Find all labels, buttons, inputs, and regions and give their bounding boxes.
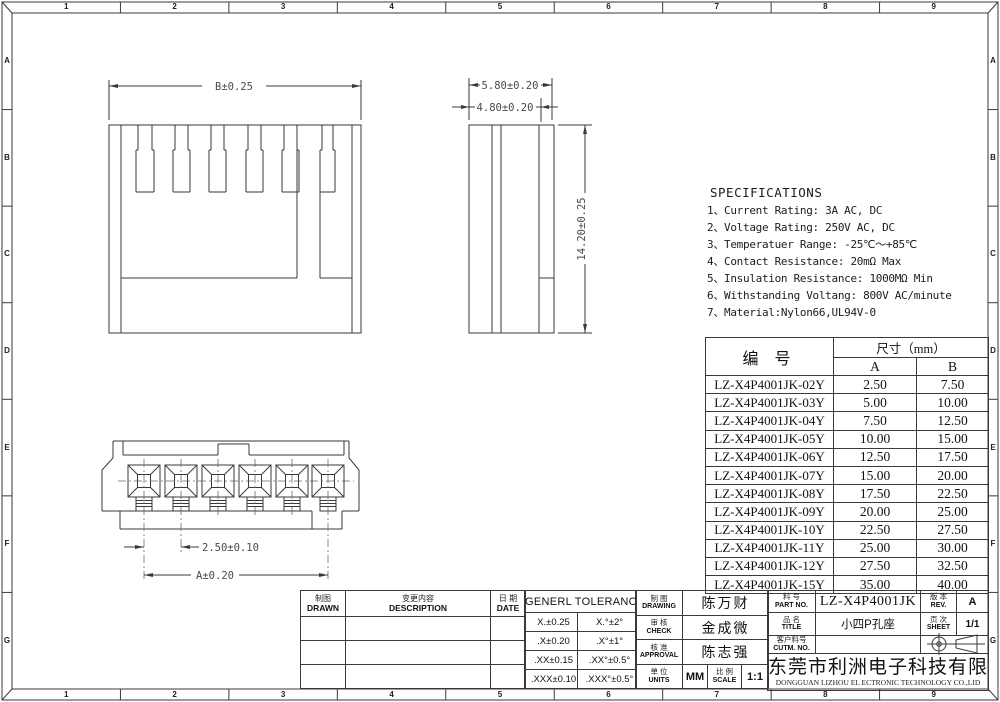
- size-value-cell: 12.50: [917, 412, 989, 430]
- specifications-block: SPECIFICATIONS 1、Current Rating: 3A AC, …: [707, 184, 997, 321]
- ruler-label: A: [987, 56, 999, 66]
- spec-line: 5、Insulation Resistance: 1000MΩ Min: [707, 270, 997, 287]
- tolerance-row: .X±0.20.X°±1°: [525, 632, 637, 651]
- part-number-cell: LZ-X4P4001JK-06Y: [706, 448, 834, 466]
- tolerance-row: X.±0.25X.°±2°: [525, 613, 637, 632]
- size-value-cell: 5.00: [834, 394, 917, 412]
- ruler-label: E: [987, 443, 999, 453]
- dimension-label-span: A±0.20: [196, 570, 234, 582]
- part-number-cell: LZ-X4P4001JK-03Y: [706, 394, 834, 412]
- size-value-cell: 20.00: [834, 503, 917, 521]
- revision-description-header: 变更内容 DESCRIPTION: [346, 591, 491, 617]
- column-a-header: A: [834, 358, 917, 376]
- ruler-label: 7: [711, 2, 723, 12]
- tolerance-cell: X.±0.25: [525, 613, 578, 632]
- bottom-view-dimensions: 2.50±0.10 A±0.20: [124, 542, 328, 582]
- scale-value: 1:1: [742, 665, 769, 689]
- ruler-label: F: [1, 539, 13, 549]
- ruler-label: C: [987, 249, 999, 259]
- table-row: LZ-X4P4001JK-11Y25.0030.00: [706, 539, 989, 557]
- table-row: LZ-X4P4001JK-03Y5.0010.00: [706, 394, 989, 412]
- company-cell: 东莞市利洲电子科技有限公司 DONGGUAN LIZHOU EL ECTRONI…: [768, 653, 989, 690]
- customer-no-label: 客户料号 CUTM. NO.: [768, 636, 816, 654]
- ruler-label: C: [1, 249, 13, 259]
- ruler-label: 3: [277, 690, 289, 700]
- ruler-label: 3: [277, 2, 289, 12]
- ruler-label: 2: [169, 2, 181, 12]
- part-no-value: LZ-X4P4001JK: [816, 591, 921, 613]
- ruler-label: D: [987, 346, 999, 356]
- size-value-cell: 7.50: [917, 376, 989, 394]
- tolerance-row: .XX±0.15.XX°±0.5°: [525, 651, 637, 670]
- table-row: LZ-X4P4001JK-06Y12.5017.50: [706, 448, 989, 466]
- ruler-label: B: [1, 153, 13, 163]
- spec-line: 2、Voltage Rating: 250V AC, DC: [707, 219, 997, 236]
- size-value-cell: 22.50: [917, 485, 989, 503]
- tolerance-cell: .XX°±0.5°: [578, 651, 637, 670]
- ruler-label: 5: [494, 690, 506, 700]
- company-name-cn: 东莞市利洲电子科技有限公司: [768, 657, 988, 678]
- dimension-label-side-width: 5.80±0.20: [482, 80, 539, 92]
- ruler-label: 9: [928, 690, 940, 700]
- spec-line: 3、Temperatuer Range: -25℃～+85℃: [707, 236, 997, 253]
- part-number-cell: LZ-X4P4001JK-05Y: [706, 430, 834, 448]
- size-value-cell: 25.00: [917, 503, 989, 521]
- drawing-name: 陈万财: [683, 591, 769, 616]
- table-row: LZ-X4P4001JK-08Y17.5022.50: [706, 485, 989, 503]
- dimension-label-front-width: B±0.25: [215, 81, 253, 93]
- units-label: 单 位 UNITS: [636, 665, 683, 689]
- size-value-cell: 10.00: [834, 430, 917, 448]
- sheet-label: 页 次 SHEET: [921, 613, 957, 636]
- tolerance-cell: .X°±1°: [578, 632, 637, 651]
- ruler-label: A: [1, 56, 13, 66]
- tolerance-header: GENERL TOLERANCE: [525, 591, 637, 613]
- revision-drawn-header: 制图 DRAWN: [301, 591, 346, 617]
- size-value-cell: 27.50: [917, 521, 989, 539]
- revision-empty-cell: [346, 617, 491, 641]
- table-row: LZ-X4P4001JK-02Y2.507.50: [706, 376, 989, 394]
- revision-empty-cell: [491, 665, 526, 689]
- front-view-dimension: B±0.25: [109, 79, 361, 120]
- spec-line: 4、Contact Resistance: 20mΩ Max: [707, 253, 997, 270]
- size-value-cell: 27.50: [834, 557, 917, 575]
- revision-empty-cell: [491, 641, 526, 665]
- specifications-list: 1、Current Rating: 3A AC, DC2、Voltage Rat…: [707, 202, 997, 321]
- drawing-label: 制 图 DRAWING: [636, 591, 683, 616]
- parts-table-body: LZ-X4P4001JK-02Y2.507.50LZ-X4P4001JK-03Y…: [706, 376, 989, 594]
- size-value-cell: 12.50: [834, 448, 917, 466]
- dimension-label-side-height: 14.20±0.25: [576, 197, 588, 260]
- front-view: [109, 125, 361, 333]
- ruler-label: 8: [819, 2, 831, 12]
- drawing-sheet: B±0.25 5.80±0.20 4.80: [0, 0, 1000, 702]
- sheet-value: 1/1: [957, 613, 989, 636]
- part-number-cell: LZ-X4P4001JK-11Y: [706, 539, 834, 557]
- table-row: LZ-X4P4001JK-12Y27.5032.50: [706, 557, 989, 575]
- revision-empty-cell: [301, 641, 346, 665]
- size-value-cell: 30.00: [917, 539, 989, 557]
- ruler-label: 5: [494, 2, 506, 12]
- ruler-label: F: [987, 539, 999, 549]
- part-number-cell: LZ-X4P4001JK-02Y: [706, 376, 834, 394]
- part-number-cell: LZ-X4P4001JK-09Y: [706, 503, 834, 521]
- revision-empty-cell: [346, 665, 491, 689]
- revision-empty-cell: [301, 665, 346, 689]
- title-label: 品 名 TITLE: [768, 613, 816, 636]
- ruler-label: 6: [602, 690, 614, 700]
- size-value-cell: 32.50: [917, 557, 989, 575]
- ruler-label: 1: [60, 2, 72, 12]
- table-row: LZ-X4P4001JK-07Y15.0020.00: [706, 466, 989, 484]
- title-value: 小四P孔座: [816, 613, 921, 636]
- rev-label: 版 本 REV.: [921, 591, 957, 613]
- size-value-cell: 15.00: [917, 430, 989, 448]
- spec-line: 1、Current Rating: 3A AC, DC: [707, 202, 997, 219]
- column-b-header: B: [917, 358, 989, 376]
- tolerance-table: GENERL TOLERANCE X.±0.25X.°±2°.X±0.20.X°…: [524, 590, 637, 689]
- tolerance-cell: .XX±0.15: [525, 651, 578, 670]
- customer-no-value: [816, 636, 921, 654]
- parts-size-table: 编 号 尺寸（mm） A B LZ-X4P4001JK-02Y2.507.50L…: [705, 337, 989, 594]
- table-row: LZ-X4P4001JK-05Y10.0015.00: [706, 430, 989, 448]
- revision-empty-cell: [346, 641, 491, 665]
- ruler-label: 4: [386, 2, 398, 12]
- ruler-label: 6: [602, 2, 614, 12]
- approval-label: 核 准 APPROVAL: [636, 640, 683, 665]
- check-label: 审 核 CHECK: [636, 616, 683, 640]
- signoff-table: 制 图 DRAWING 陈万财 审 核 CHECK 金成微 核 准 APPROV…: [635, 590, 769, 689]
- size-value-cell: 25.00: [834, 539, 917, 557]
- part-no-label: 料 号 PART NO.: [768, 591, 816, 613]
- table-row: LZ-X4P4001JK-04Y7.5012.50: [706, 412, 989, 430]
- part-number-header: 编 号: [706, 338, 834, 376]
- size-value-cell: 15.00: [834, 466, 917, 484]
- part-info-table: 料 号 PART NO. LZ-X4P4001JK 版 本 REV. A 品 名…: [767, 590, 989, 691]
- tolerance-table-body: X.±0.25X.°±2°.X±0.20.X°±1°.XX±0.15.XX°±0…: [525, 613, 637, 689]
- check-name: 金成微: [683, 616, 769, 640]
- size-value-cell: 17.50: [917, 448, 989, 466]
- ruler-label: B: [987, 153, 999, 163]
- size-value-cell: 10.00: [917, 394, 989, 412]
- spec-line: 7、Material:Nylon66,UL94V-0: [707, 304, 997, 321]
- rev-value: A: [957, 591, 989, 613]
- part-number-cell: LZ-X4P4001JK-08Y: [706, 485, 834, 503]
- scale-label: 比 例 SCALE: [708, 665, 742, 689]
- table-row: LZ-X4P4001JK-09Y20.0025.00: [706, 503, 989, 521]
- size-value-cell: 2.50: [834, 376, 917, 394]
- ruler-label: 9: [928, 2, 940, 12]
- projection-symbol-cell: [921, 636, 989, 654]
- size-header: 尺寸（mm）: [834, 338, 989, 358]
- dimension-label-side-inner-width: 4.80±0.20: [477, 102, 534, 114]
- ruler-label: 4: [386, 690, 398, 700]
- revision-empty-cell: [491, 617, 526, 641]
- size-value-cell: 22.50: [834, 521, 917, 539]
- tolerance-cell: .XXX°±0.5°: [578, 670, 637, 689]
- part-number-cell: LZ-X4P4001JK-12Y: [706, 557, 834, 575]
- company-name-en: DONGGUAN LIZHOU EL ECTRONIC TECHNOLOGY C…: [768, 678, 988, 687]
- size-value-cell: 7.50: [834, 412, 917, 430]
- ruler-label: G: [987, 636, 999, 646]
- revision-table: 制图 DRAWN 变更内容 DESCRIPTION 日 期 DATE: [300, 590, 526, 689]
- ruler-label: 1: [60, 690, 72, 700]
- bottom-view: [102, 441, 359, 580]
- size-value-cell: 20.00: [917, 466, 989, 484]
- ruler-label: D: [1, 346, 13, 356]
- table-row: LZ-X4P4001JK-10Y22.5027.50: [706, 521, 989, 539]
- approval-name: 陈志强: [683, 640, 769, 665]
- part-number-cell: LZ-X4P4001JK-10Y: [706, 521, 834, 539]
- units-value: MM: [683, 665, 708, 689]
- side-view-dimensions: 5.80±0.20 4.80±0.20 14.20±0.25: [452, 78, 592, 333]
- ruler-label: 2: [169, 690, 181, 700]
- dimension-label-pitch: 2.50±0.10: [202, 542, 259, 554]
- revision-date-header: 日 期 DATE: [491, 591, 526, 617]
- ruler-label: G: [1, 636, 13, 646]
- tolerance-row: .XXX±0.10.XXX°±0.5°: [525, 670, 637, 689]
- ruler-label: 7: [711, 690, 723, 700]
- side-view: [469, 125, 554, 333]
- part-number-cell: LZ-X4P4001JK-04Y: [706, 412, 834, 430]
- specifications-title: SPECIFICATIONS: [707, 184, 997, 202]
- tolerance-cell: .X±0.20: [525, 632, 578, 651]
- part-number-cell: LZ-X4P4001JK-07Y: [706, 466, 834, 484]
- tolerance-cell: .XXX±0.10: [525, 670, 578, 689]
- bottom-view-cavities: [128, 459, 344, 580]
- spec-line: 6、Withstanding Voltang: 800V AC/minute: [707, 287, 997, 304]
- tolerance-cell: X.°±2°: [578, 613, 637, 632]
- ruler-label: E: [1, 443, 13, 453]
- size-value-cell: 17.50: [834, 485, 917, 503]
- ruler-label: 8: [819, 690, 831, 700]
- revision-empty-cell: [301, 617, 346, 641]
